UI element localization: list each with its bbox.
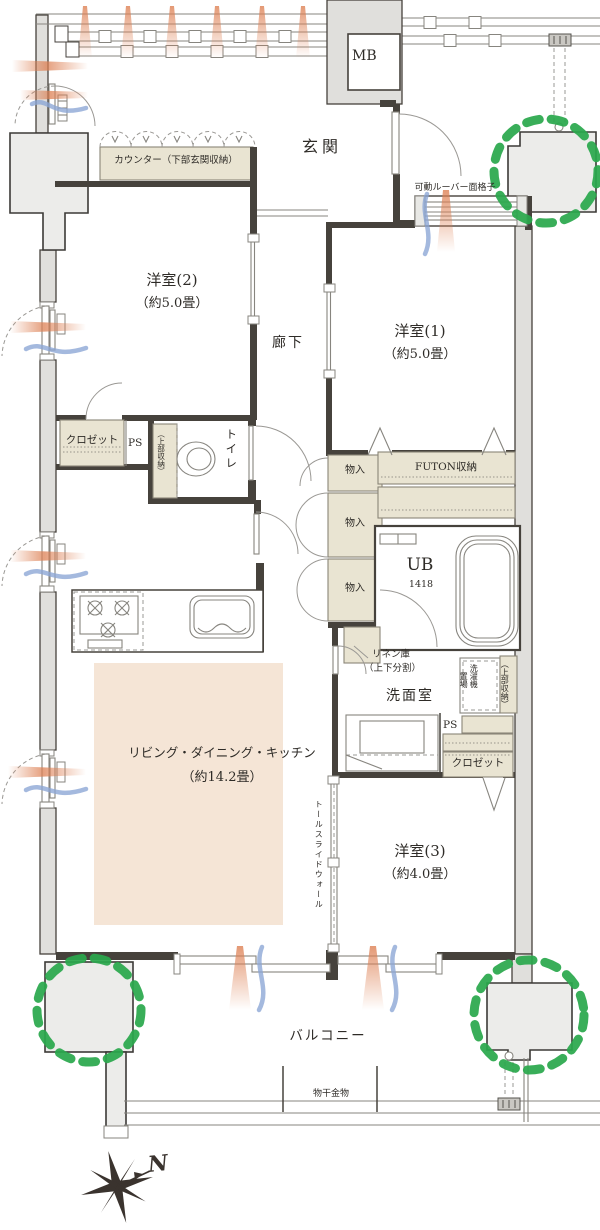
entry-step [257,210,328,216]
bath-name: UB [407,556,434,576]
laundry-machine-label: 洗濯機 [469,664,478,688]
laundry-place-label: 置場 [459,672,468,688]
window-kitchen [2,532,86,592]
meter-box-label: MB [352,48,377,64]
closet-western2 [60,383,126,466]
western2-name: 洋室(2) [146,272,197,289]
closet-western2-label: クロゼット [66,434,119,446]
louver-note: 可動ルーバー面格子 [415,183,496,193]
tall-slide-wall-note: トールスライドウォール [314,800,323,910]
louver-grille-window [415,190,527,254]
western2-size: （約5.0畳） [136,297,209,312]
hallway-label: 廊下 [272,335,304,351]
floorplan: カウンター（下部玄関収納） 玄関 MB 可動ルーバー面格子 洋室(2) （約5.… [0,0,600,1230]
toilet-upper-note: （上部収納） [156,430,165,475]
ldk-size: （約14.2畳） [182,771,263,786]
ps-south-label: PS [443,719,457,731]
sliding-door-western1 [324,284,335,378]
western3-size: （約4.0畳） [384,868,457,883]
window-western2 [2,302,86,360]
ldk-name: リビング・ダイニング・キッチン [128,746,316,760]
washroom-label: 洗面室 [386,688,434,704]
ps-north-label: PS [128,437,142,449]
entry-counter-label: カウンター（下部玄関収納） [114,156,238,167]
closet-western3-label: クロゼット [452,757,505,769]
linen-label: リネン庫 [372,650,410,661]
window-ldk [2,750,86,808]
floorplan-canvas [0,0,600,1230]
entry-door [392,112,461,176]
genkan-label: 玄関 [302,138,342,156]
ldk-floor-tint [94,663,283,925]
western1-name: 洋室(1) [394,323,445,340]
tall-slide-wall [328,776,339,952]
western1-size: （約5.0畳） [384,348,457,363]
porch-door [12,60,95,126]
futon-label: FUTON収納 [415,461,477,473]
bath-size: 1418 [409,580,433,591]
sliding-door-western2 [248,234,259,324]
monoiri-2-label: 物入 [345,518,365,530]
western3-name: 洋室(3) [394,843,445,860]
unit-bath [375,526,520,650]
linen-note: （上下分割） [364,664,421,675]
monoiri-column [296,455,382,621]
monoiri-3-label: 物入 [345,583,365,595]
window-ldk-south [174,954,330,974]
laundry-upper-note: （上部収納） [500,660,509,708]
kitchen-counter [72,590,263,652]
laundry-hardware-note: 物干金物 [313,1089,349,1099]
balcony-label: バルコニー [289,1029,366,1045]
toilet-label: トイレ [224,428,237,472]
monoiri-1-label: 物入 [345,465,365,477]
balcony-rail [104,1066,600,1138]
compass-n-label: N [147,1151,170,1178]
window-western3-south [338,954,442,974]
